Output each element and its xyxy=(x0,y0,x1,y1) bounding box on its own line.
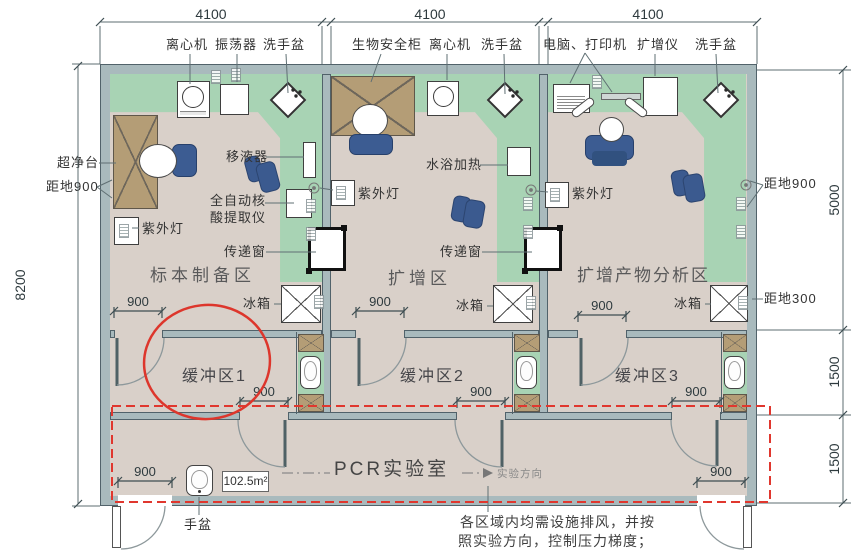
annotation-overlay xyxy=(0,0,860,550)
door-leaves xyxy=(117,338,717,467)
direction-arrow-icon xyxy=(483,468,493,478)
basin-faucet-dots xyxy=(291,88,734,97)
power-socket-icons xyxy=(309,180,751,195)
leader-lines xyxy=(97,53,763,515)
dimension-lines xyxy=(72,22,851,506)
dimension-ticks xyxy=(74,18,847,508)
pcr-lab-floor-plan: 102.5m² 4100 4100 4100 8200 5000 1500 15… xyxy=(0,0,860,550)
door-arcs xyxy=(117,338,744,549)
